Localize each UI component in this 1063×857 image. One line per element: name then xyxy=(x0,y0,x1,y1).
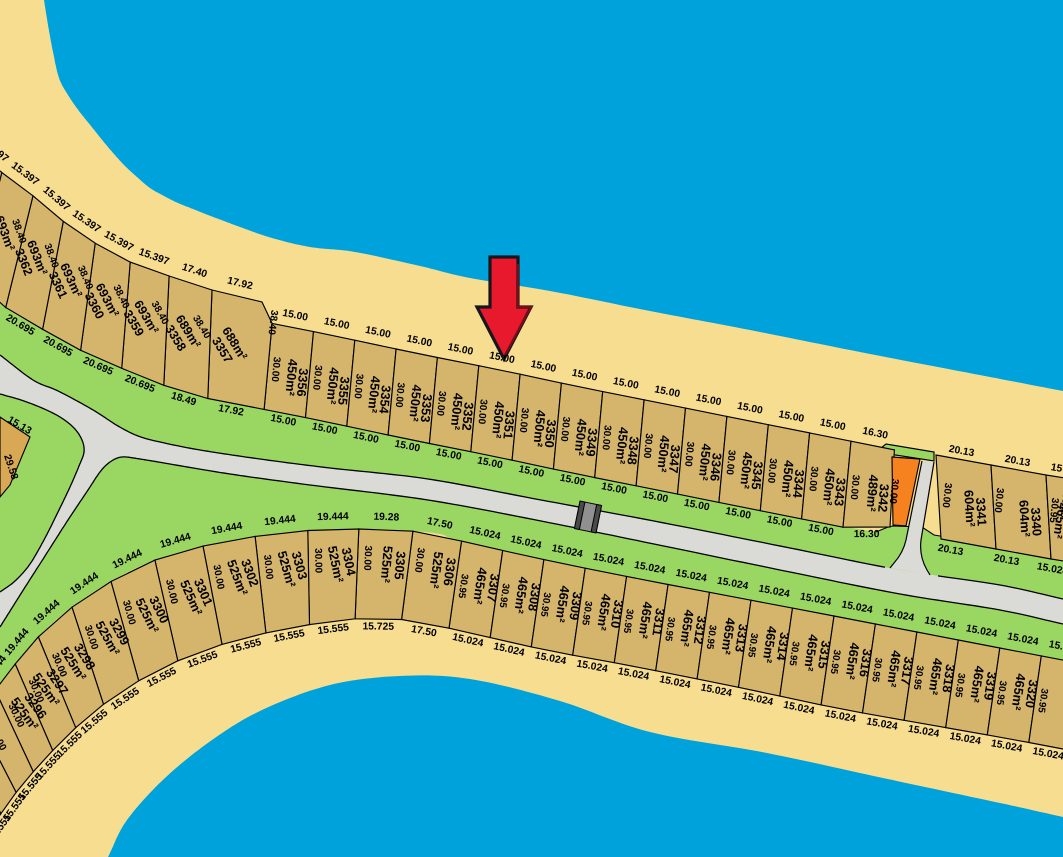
svg-text:30.00: 30.00 xyxy=(641,433,654,459)
svg-text:30.00: 30.00 xyxy=(393,382,406,408)
svg-text:30.00: 30.00 xyxy=(765,458,778,484)
svg-text:30.00: 30.00 xyxy=(724,449,737,475)
svg-text:30.00: 30.00 xyxy=(599,425,612,451)
svg-text:19.28: 19.28 xyxy=(373,512,399,524)
svg-text:525m²: 525m² xyxy=(378,545,396,583)
svg-text:30.00: 30.00 xyxy=(434,390,447,416)
svg-text:15: 15 xyxy=(1050,462,1063,475)
svg-text:30.00: 30.00 xyxy=(806,466,819,492)
svg-text:30.00: 30.00 xyxy=(351,373,364,399)
svg-text:30.00: 30.00 xyxy=(682,441,695,467)
svg-text:15.725: 15.725 xyxy=(362,621,394,632)
svg-text:30.00: 30.00 xyxy=(475,399,488,425)
svg-text:30.00: 30.00 xyxy=(517,407,530,433)
svg-text:16.30: 16.30 xyxy=(854,529,880,540)
svg-text:489m²: 489m² xyxy=(864,474,882,512)
svg-text:30.00: 30.00 xyxy=(848,474,861,500)
svg-text:30.00: 30.00 xyxy=(310,365,323,391)
svg-text:19.444: 19.444 xyxy=(317,511,349,523)
svg-text:30.00: 30.00 xyxy=(361,545,373,571)
svg-text:30.00: 30.00 xyxy=(269,356,282,382)
svg-text:604m²: 604m² xyxy=(961,490,978,528)
svg-text:604m²: 604m² xyxy=(1016,500,1033,538)
svg-text:30.00: 30.00 xyxy=(558,416,571,442)
svg-text:30.00: 30.00 xyxy=(312,548,323,574)
